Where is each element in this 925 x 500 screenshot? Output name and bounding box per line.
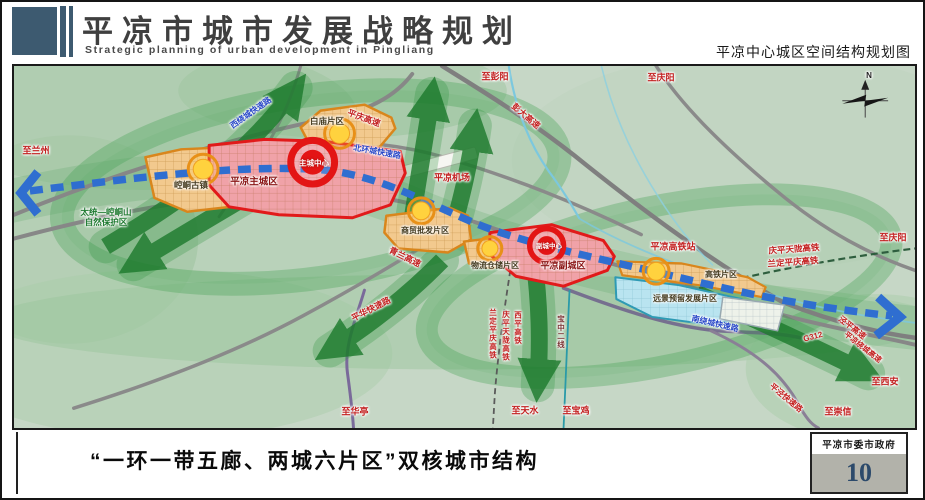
map-frame: 至兰州太统—崆峒山 自然保护区崆峒古镇平凉主城区主城中心白庙片区西绕城快速路北环… — [12, 64, 917, 430]
page-subtitle: Strategic planning of urban development … — [85, 44, 435, 56]
footer-caption: “一环一带五廊、两城六片区”双核城市结构 — [90, 445, 539, 475]
header-accent-square — [12, 7, 57, 55]
map-graphic — [14, 66, 915, 428]
map-canvas: 至兰州太统—崆峒山 自然保护区崆峒古镇平凉主城区主城中心白庙片区西绕城快速路北环… — [14, 66, 915, 428]
header-accent-bar — [60, 6, 66, 57]
page-number: 10 — [812, 454, 906, 492]
map-sheet-title: 平凉中心城区空间结构规划图 — [716, 42, 911, 62]
credit-label: 平凉市委市政府 — [812, 434, 906, 454]
footer-divider-line — [16, 432, 18, 494]
header: 平凉市城市发展战略规划 Strategic planning of urban … — [2, 2, 923, 64]
credit-box: 平凉市委市政府 10 — [810, 432, 908, 494]
planning-document-page: 平凉市城市发展战略规划 Strategic planning of urban … — [0, 0, 925, 500]
header-accent-bar — [69, 6, 73, 57]
